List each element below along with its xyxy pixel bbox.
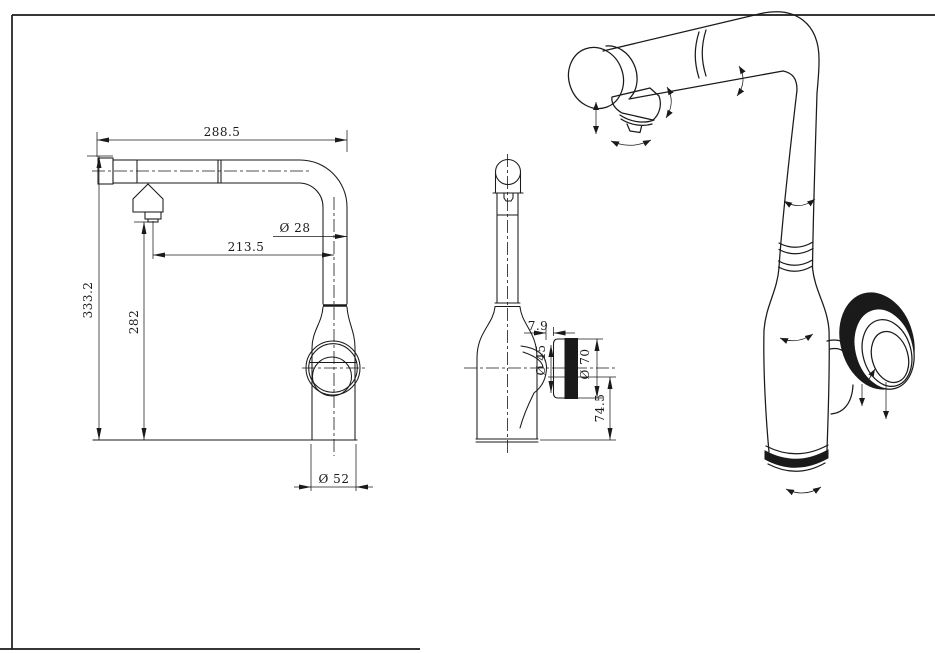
arrow-spray-swivel-icon	[611, 140, 651, 145]
dim-boss-diameter: Ø 45	[534, 345, 548, 376]
dim-knob-gap: 7.9	[528, 319, 549, 333]
side-view: 7.9 Ø 45 Ø 70 74.5	[464, 154, 616, 453]
side-knob	[554, 339, 578, 399]
dim-overall-height: 333.2	[81, 282, 95, 319]
arrow-base-rotate-icon	[786, 487, 821, 493]
arrow-riser-rotate-icon	[784, 199, 815, 206]
front-faucet-outline	[93, 158, 360, 440]
front-view: 288.5 213.5 Ø 28 333.2 282 Ø 52	[81, 125, 373, 491]
dim-overall-width: 288.5	[204, 125, 241, 139]
perspective-faucet	[560, 12, 925, 471]
faucet-technical-drawing: 288.5 213.5 Ø 28 333.2 282 Ø 52	[0, 0, 935, 653]
spray-nozzle	[133, 184, 163, 212]
perspective-view	[560, 12, 925, 493]
dim-pipe-diameter: Ø 28	[280, 221, 311, 235]
drawing-sheet: 288.5 213.5 Ø 28 333.2 282 Ø 52	[0, 0, 935, 653]
dim-base-diameter: Ø 52	[319, 472, 350, 486]
motion-arrows	[596, 66, 886, 493]
arrow-body-rotate-icon	[780, 334, 813, 341]
dim-outlet-to-base: 74.5	[593, 394, 607, 423]
spout-end-circle	[496, 160, 521, 185]
arrow-tube-tilt-icon	[737, 66, 743, 96]
dim-knob-diameter: Ø 70	[578, 349, 592, 380]
dim-outlet-height: 282	[127, 310, 141, 334]
dim-spout-reach: 213.5	[228, 240, 265, 254]
front-dimensions: 288.5 213.5 Ø 28 333.2 282 Ø 52	[81, 125, 373, 491]
perspective-knob	[827, 284, 925, 414]
side-faucet-outline	[476, 160, 578, 443]
